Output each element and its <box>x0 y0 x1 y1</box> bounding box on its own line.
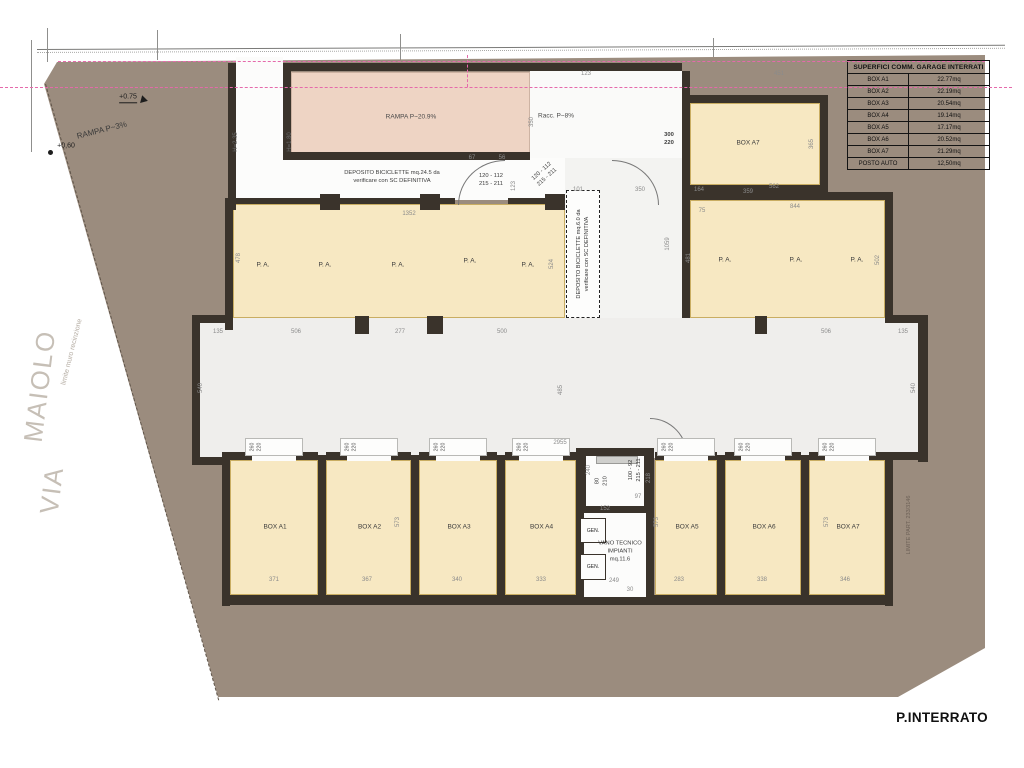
parking-spot-label: P. A. <box>719 257 732 266</box>
box-a7-top-label: BOX A7 <box>736 140 759 149</box>
garage-box: BOX A5 <box>655 460 717 595</box>
dimension-label: 152 <box>600 506 610 512</box>
garage-box: BOX A1 <box>230 460 318 595</box>
garage-box: BOX A6 <box>725 460 801 595</box>
dimension-label: 573 <box>395 517 401 527</box>
dimension-label: 283 <box>674 577 684 583</box>
boundary-pink-long <box>0 87 1012 88</box>
boundary-pink-vertical <box>467 55 468 87</box>
dimension-label: 540 <box>911 383 917 393</box>
areas-table-header: SUPERFICI COMM. GARAGE INTERRATI <box>848 61 989 74</box>
garage-box-label: BOX A6 <box>752 524 775 533</box>
street-name-via: VIA <box>34 464 71 515</box>
dimension-label: 101 <box>573 187 583 193</box>
garage-box-label: BOX A7 <box>836 524 859 533</box>
wall <box>885 452 893 606</box>
dimension-label: 478 <box>236 253 242 263</box>
areas-table-row: BOX A320.54mq <box>848 98 989 110</box>
box-door-size-label: 260220 <box>662 443 675 452</box>
parcel-boundary-label: LIMITE PART. 233/3146 <box>906 496 912 555</box>
dimension-label: 485 <box>558 385 564 395</box>
dimension-label: 97 <box>635 494 642 500</box>
dimension-label: 506 <box>821 329 831 335</box>
dimension-label: 338 <box>757 577 767 583</box>
garage-box: BOX A7 <box>809 460 885 595</box>
tech-room-label: VANO TECNICO IMPIANTI mq.11.6 <box>598 540 642 563</box>
parking-spot-label: P. A. <box>790 257 803 266</box>
wall <box>801 455 809 600</box>
wall <box>291 63 682 71</box>
dimension-label: 164 <box>694 187 704 193</box>
street-name-maiolo: MAIOLO <box>18 328 63 444</box>
fence-tick <box>400 34 401 60</box>
dimension-label: 573 <box>824 517 830 527</box>
frame-line-left <box>31 40 32 152</box>
dimension-label: 1059 <box>665 237 671 250</box>
box-door-size-label: 260220 <box>823 443 836 452</box>
areas-table: SUPERFICI COMM. GARAGE INTERRATI BOX A12… <box>847 60 990 170</box>
dimension-label: 340 <box>452 577 462 583</box>
dimension-label: 506 <box>291 329 301 335</box>
dimension-label: 367 <box>362 577 372 583</box>
ramp-label: RAMPA P~20.9% <box>386 114 437 123</box>
areas-table-area-value: 22.77mq <box>909 77 989 83</box>
dimension-label: 524 <box>549 259 555 269</box>
garage-box: BOX A4 <box>505 460 576 595</box>
garage-box: BOX A3 <box>419 460 497 595</box>
dimension-label: 502 <box>875 255 881 265</box>
box-door-size-label: 260220 <box>344 443 357 452</box>
areas-table-area-value: 20.52mq <box>909 137 989 143</box>
wall <box>318 455 326 600</box>
areas-table-row: BOX A620.52mq <box>848 134 989 146</box>
parking-spot-label: P. A. <box>392 262 405 271</box>
dimension-label: 451 <box>774 71 784 77</box>
wall <box>885 200 893 322</box>
dimension-label: 540 <box>198 383 204 393</box>
door-size-c-label: 100 - 92215 - 211 <box>628 458 644 481</box>
wall <box>497 455 505 600</box>
areas-table-area-value: 17.17mq <box>909 125 989 131</box>
lift-size-label: 80210 <box>594 476 609 486</box>
fence-tick <box>157 30 158 60</box>
pillar <box>420 194 440 210</box>
generator-box: GEN. <box>580 518 606 543</box>
areas-table-box-label: BOX A3 <box>848 98 909 109</box>
parking-spot-label: P. A. <box>319 262 332 271</box>
dimension-label: 123 <box>511 181 517 191</box>
box-door-size-label: 260220 <box>516 443 529 452</box>
areas-table-box-label: BOX A5 <box>848 122 909 133</box>
dimension-label: 481 <box>686 253 692 263</box>
spot-height-lower-dot-icon <box>48 150 53 155</box>
wall <box>411 455 419 600</box>
dimension-label: 2955 <box>553 440 566 446</box>
areas-table-box-label: POSTO AUTO <box>848 158 909 169</box>
areas-table-box-label: BOX A7 <box>848 146 909 157</box>
parking-spot-label: P. A. <box>464 258 477 267</box>
areas-table-row: POSTO AUTO12,50mq <box>848 158 989 169</box>
dimension-label: 30 <box>627 587 634 593</box>
areas-table-area-value: 20.54mq <box>909 101 989 107</box>
dimension-label: 249 <box>609 578 619 584</box>
garage-box-label: BOX A1 <box>263 524 286 533</box>
pillar <box>320 194 340 210</box>
dimension-label: 218 <box>646 473 652 483</box>
bike-storage-top-label: DEPOSITO BICICLETTE mq.24.5 daverificare… <box>344 170 440 186</box>
wall <box>717 455 725 600</box>
wall <box>192 315 233 323</box>
dimension-label: 123 <box>581 71 591 77</box>
box-door-size-label: 260220 <box>434 443 447 452</box>
height-label-right: H=1.80 <box>287 132 293 152</box>
dimension-label: 346 <box>840 577 850 583</box>
fence-tick <box>713 38 714 60</box>
garage-box: BOX A2 <box>326 460 411 595</box>
areas-table-area-value: 22.19mq <box>909 89 989 95</box>
areas-table-area-value: 19.14mq <box>909 113 989 119</box>
dimension-label: 75 <box>699 208 706 214</box>
parking-spot-label: P. A. <box>851 257 864 266</box>
areas-table-row: BOX A122.77mq <box>848 74 989 86</box>
wall <box>918 316 928 462</box>
garage-box-label: BOX A3 <box>447 524 470 533</box>
areas-table-area-value: 12,50mq <box>909 161 989 167</box>
parking-spot-label: P. A. <box>522 262 535 271</box>
wall <box>885 315 928 323</box>
wall <box>682 71 690 195</box>
garage-box-label: BOX A5 <box>675 524 698 533</box>
door-size-a-label: 120 - 112215 - 211 <box>479 173 503 189</box>
box-door-size-label: 260220 <box>250 443 263 452</box>
spot-height-upper: +0.75 <box>119 92 137 103</box>
drawing-sheet: MAIOLO VIA limite muro recinzione RAMPA … <box>0 0 1024 768</box>
pillar <box>355 316 369 334</box>
racc-label: Racc. P~8% <box>538 113 574 122</box>
dimension-label: 67 <box>469 155 476 161</box>
areas-table-box-label: BOX A1 <box>848 74 909 85</box>
dimension-label: 135 <box>213 329 223 335</box>
box-door-size-label: 260220 <box>739 443 752 452</box>
wall <box>682 192 893 200</box>
height-label-left: H=2.35 <box>233 132 239 152</box>
fence-tick <box>47 28 48 62</box>
dimension-label: 371 <box>269 577 279 583</box>
wall <box>222 452 230 606</box>
garage-box-label: BOX A2 <box>358 524 381 533</box>
dimension-label: 1352 <box>402 211 415 217</box>
pillar <box>755 316 767 334</box>
dimension-label: 135 <box>898 329 908 335</box>
dimension-label: 350 <box>635 187 645 193</box>
dimension-label: 350 <box>529 117 535 127</box>
dimension-label: 240 <box>586 465 592 475</box>
wall <box>291 152 530 160</box>
areas-table-box-label: BOX A4 <box>848 110 909 121</box>
dimension-label: 500 <box>497 329 507 335</box>
dimension-label: 277 <box>395 329 405 335</box>
dimension-label: 573 <box>654 517 660 527</box>
dimension-label: 365 <box>809 139 815 149</box>
opening-size-label: 300220 <box>664 132 674 148</box>
areas-table-row: BOX A721.29mq <box>848 146 989 158</box>
wall <box>682 95 828 103</box>
pillar <box>545 194 565 210</box>
pillar <box>427 316 443 334</box>
areas-table-area-value: 21.29mq <box>909 149 989 155</box>
bike-storage-mid-label: DEPOSITO BICICLETTE mq.6.0 daverificare … <box>576 209 592 298</box>
boundary-pink-dashed <box>58 61 985 62</box>
dimension-label: 359 <box>743 189 753 195</box>
areas-table-row: BOX A419.14mq <box>848 110 989 122</box>
floor-title: P.INTERRATO <box>896 710 988 725</box>
garage-box-label: BOX A4 <box>530 524 553 533</box>
wall <box>225 198 233 330</box>
areas-table-row: BOX A517.17mq <box>848 122 989 134</box>
dimension-label: 844 <box>790 204 800 210</box>
wall <box>820 95 828 193</box>
fence-label: limite muro recinzione <box>60 318 83 386</box>
dimension-label: 333 <box>536 577 546 583</box>
dimension-label: 56 <box>499 155 506 161</box>
parking-spot-label: P. A. <box>257 262 270 271</box>
spot-height-lower: +0,60 <box>57 141 75 150</box>
areas-table-box-label: BOX A6 <box>848 134 909 145</box>
dimension-label: 562 <box>769 184 779 190</box>
